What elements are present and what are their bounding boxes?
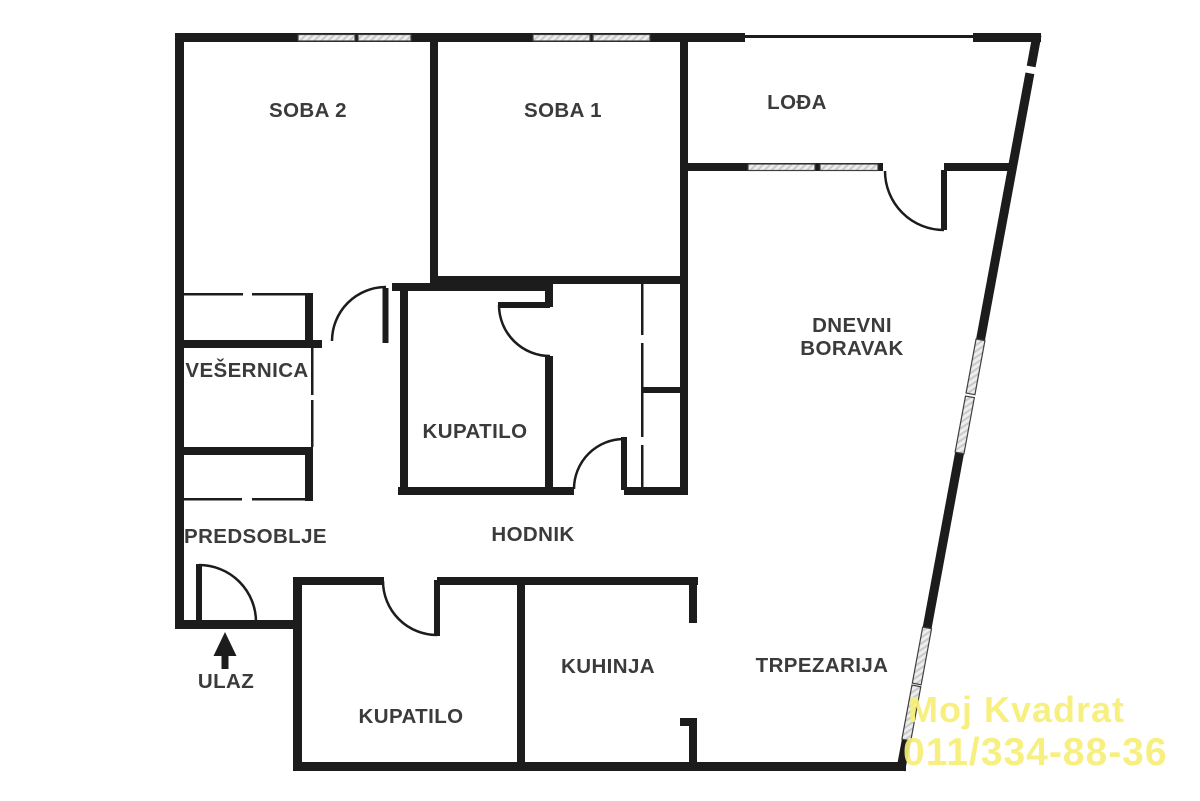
window-livingroom-1 — [966, 339, 985, 395]
wall-bottom-exterior — [293, 762, 906, 771]
wall-kupatilo2-kuhinja-divider — [517, 577, 525, 770]
room-label-kupatilo-upper: KUPATILO — [400, 421, 550, 444]
wall-long-vertical-divider — [680, 33, 688, 495]
window-trpezarija-1 — [912, 627, 931, 685]
wall-lodja-bottom-right — [944, 163, 1016, 171]
slant-wall-segment — [976, 73, 1034, 341]
wall-kupatilo2-left — [293, 577, 302, 770]
thin-partition-lines — [184, 284, 644, 501]
door-leaf-soba2 — [383, 288, 389, 343]
wall-hodnik-top-left — [398, 487, 574, 495]
wall-kuhinja-right-stub-cap — [680, 718, 697, 726]
room-label-hodnik: HODNIK — [463, 524, 603, 547]
room-label-ulaz: ULAZ — [186, 671, 266, 694]
shaft-left-thin-wall-2 — [641, 343, 644, 437]
door-arc-entrance — [199, 565, 256, 622]
room-label-kuhinja: KUHINJA — [538, 656, 678, 679]
wall-predsoblje-bottom — [175, 620, 302, 629]
wall-kupatilo1-left — [400, 283, 408, 495]
window-soba1-1 — [533, 35, 590, 42]
floor-plan-canvas: SOBA 2 SOBA 1 LOĐA DNEVNI BORAVAK VEŠERN… — [0, 0, 1200, 801]
wall-left-exterior — [175, 33, 184, 628]
loggia-open-edge-line — [745, 35, 973, 38]
room-label-soba1: SOBA 1 — [483, 100, 643, 123]
slanted-exterior-wall — [896, 34, 1041, 771]
room-label-trpezarija: TRPEZARIJA — [752, 655, 892, 678]
room-label-predsoblje: PREDSOBLJE — [184, 526, 324, 549]
watermark-phone-text: 011/334-88-36 — [903, 731, 1168, 775]
door-arc-corridor — [574, 439, 624, 489]
wall-shaft-divider — [641, 387, 688, 393]
window-soba2-1 — [298, 35, 355, 42]
wall-kuhinja-top — [437, 577, 698, 585]
closet2-front-line-right — [252, 498, 305, 501]
wall-hodnik-top-right — [624, 487, 688, 495]
wall-kupatilo2-top-left — [293, 577, 384, 585]
door-leaf-kupatilo1 — [498, 302, 550, 308]
window-soba1-2 — [593, 35, 650, 42]
window-livingroom-2 — [955, 396, 974, 454]
room-label-kupatilo-lower: KUPATILO — [336, 706, 486, 729]
shaft-left-thin-wall-3 — [641, 445, 644, 487]
door-leaf-corridor — [621, 437, 627, 490]
watermark-brand-text: Moj Kvadrat — [908, 689, 1125, 731]
wall-kuhinja-right-stub-upper — [689, 585, 697, 623]
wall-kupatilo1-top — [392, 283, 553, 291]
wall-kuhinja-right-stub-lower — [689, 726, 697, 763]
door-arc-kupatilo2 — [383, 581, 437, 635]
room-label-vesernica: VEŠERNICA — [178, 360, 316, 383]
door-arc-lodja — [885, 171, 944, 230]
wall-soba1-bottom — [430, 276, 688, 284]
slant-wall-segment — [923, 452, 964, 629]
door-arc-soba2 — [332, 287, 386, 341]
wall-soba2-bottom — [175, 340, 322, 348]
window-soba2-2 — [358, 35, 411, 42]
entrance-arrow-icon — [214, 632, 237, 669]
wall-vesernica-bottom — [175, 447, 313, 455]
window-lodja-1 — [748, 164, 815, 171]
door-arc-kupatilo1 — [499, 305, 550, 356]
window-lodja-2 — [820, 164, 878, 171]
door-leaf-entrance — [196, 564, 202, 622]
doors — [196, 170, 947, 636]
closet2-front-line-left — [184, 498, 242, 501]
door-leaf-kupatilo2 — [434, 580, 440, 636]
room-label-lodja: LOĐA — [737, 92, 857, 115]
room-label-dnevni-boravak: DNEVNI BORAVAK — [772, 315, 932, 360]
wall-top-right-block — [973, 33, 1041, 42]
wall-top-exterior — [175, 33, 745, 42]
wall-soba1-soba2-divider — [430, 33, 438, 284]
wall-wardrobe-right — [305, 293, 313, 340]
wardrobe-front-line-right — [252, 293, 305, 296]
wardrobe-front-line-left — [184, 293, 243, 296]
room-label-soba2: SOBA 2 — [228, 100, 388, 123]
wall-closet2-right — [305, 455, 313, 501]
shaft-left-thin-wall-1 — [641, 284, 644, 335]
vesernica-right-thin-wall-lower — [311, 400, 314, 447]
door-leaf-lodja — [941, 170, 947, 230]
